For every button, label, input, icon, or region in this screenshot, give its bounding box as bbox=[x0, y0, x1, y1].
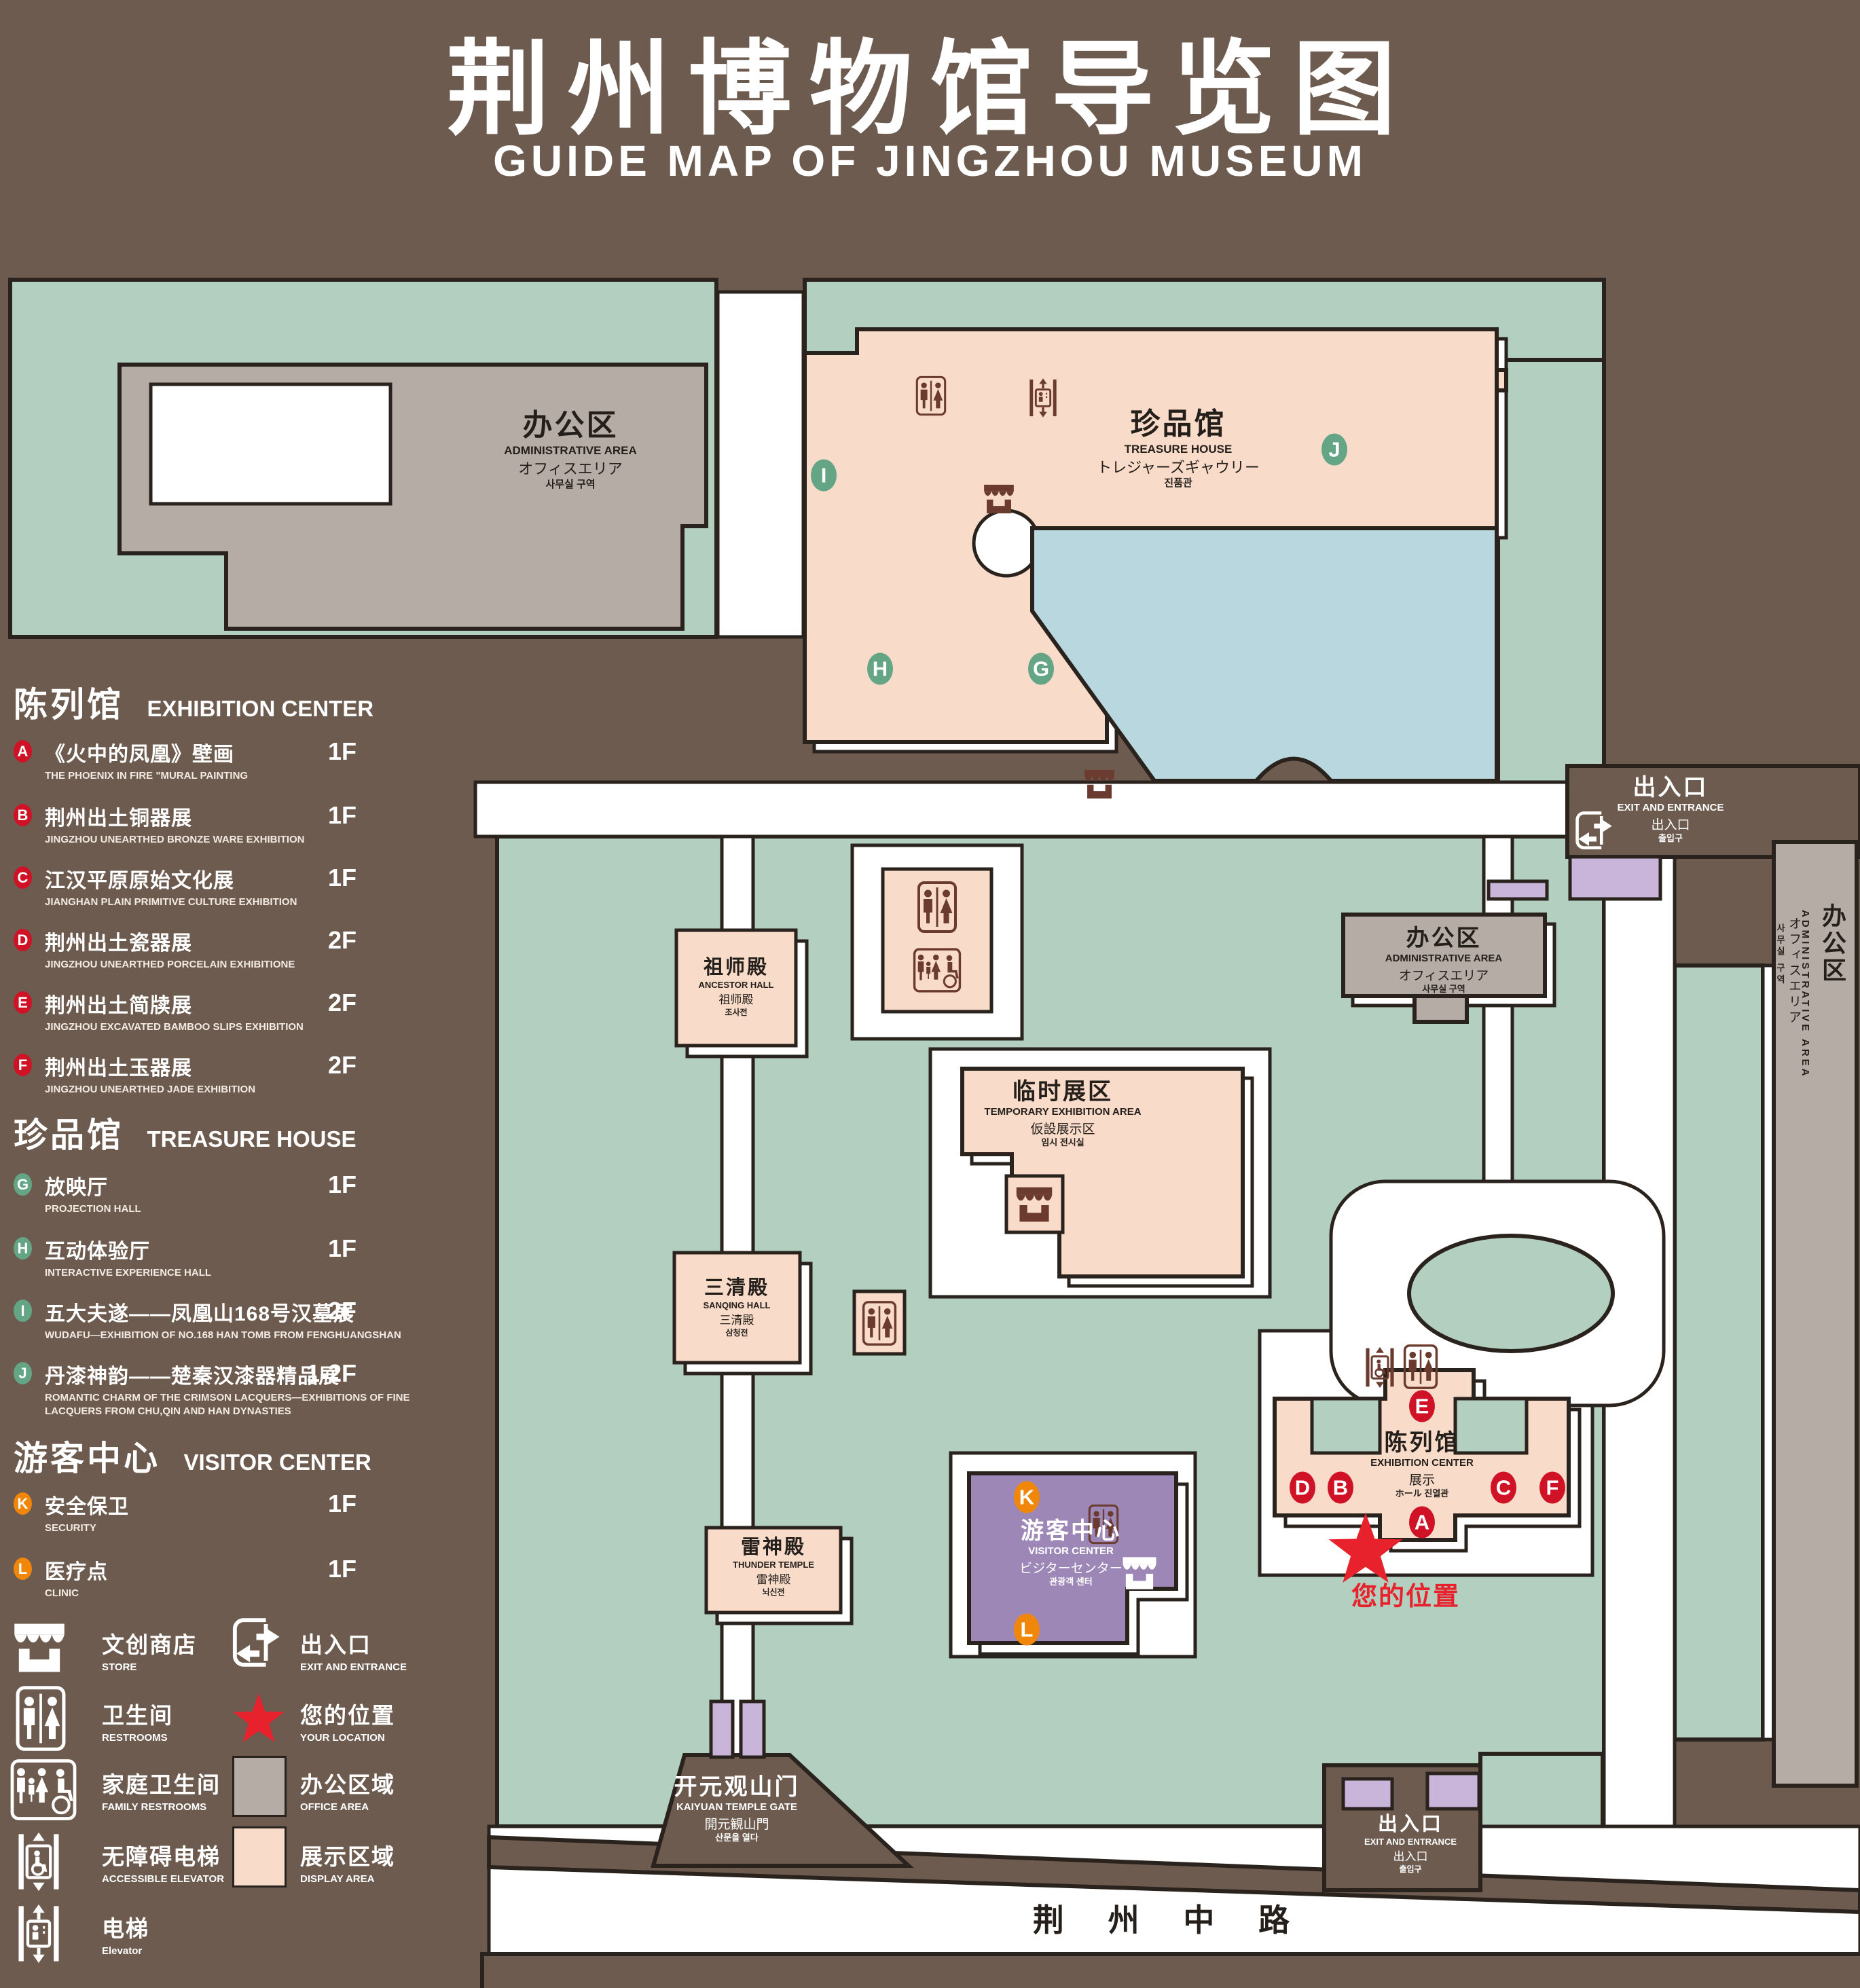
symbol-zh: 电梯 bbox=[102, 1911, 149, 1943]
legend-item-h: H 互动体验厅 INTERACTIVE EXPERIENCE HALL 1F bbox=[14, 1234, 462, 1280]
visitor-center-ja: ビジターセンター bbox=[976, 1561, 1166, 1577]
thunder-temple-ko: 뇌신전 bbox=[699, 1587, 848, 1598]
legend-caption: JINGZHOU UNEARTHED BRONZE WARE EXHIBITIO… bbox=[45, 833, 425, 847]
legend-caption: ROMANTIC CHARM OF THE CRIMSON LACQUERS—E… bbox=[45, 1391, 425, 1419]
exit-s-building-1 bbox=[1343, 1779, 1392, 1809]
gate-pillar-left bbox=[711, 1701, 733, 1757]
legend-caption: WUDAFU—EXHIBITION OF NO.168 HAN TOMB FRO… bbox=[45, 1329, 425, 1342]
admin-e-ko: 사무실 구역 bbox=[1342, 984, 1546, 995]
floor-label: 2F bbox=[299, 1051, 357, 1080]
map-marker-d: D bbox=[1290, 1472, 1315, 1504]
label-admin-nw: 办公区 ADMINISTRATIVE AREA オフィスエリア 사무실 구역 bbox=[435, 407, 706, 492]
legend-item-c: C 江汉平原原始文化展 JIANGHAN PLAIN PRIMITIVE CUL… bbox=[14, 864, 462, 909]
symbol-en: Elevator bbox=[102, 1945, 149, 1957]
treasure-house-en: TREASURE HOUSE bbox=[1056, 443, 1300, 457]
legend-item-f: F 荆州出土玉器展 JINGZHOU UNEARTHED JADE EXHIBI… bbox=[14, 1051, 462, 1097]
exit-s-building-2 bbox=[1427, 1773, 1479, 1809]
marker-badge-l: L bbox=[14, 1558, 32, 1580]
legend-caption: SECURITY bbox=[45, 1522, 425, 1535]
grounds-east-column bbox=[1675, 965, 1763, 1739]
road-mid-horizontal bbox=[475, 782, 1604, 836]
marker-badge-b: B bbox=[14, 804, 32, 826]
legend-header-zh: 游客中心 bbox=[14, 1439, 160, 1477]
legend-header-zh: 陈列馆 bbox=[14, 686, 124, 724]
legend-caption: JIANGHAN PLAIN PRIMITIVE CULTURE EXHIBIT… bbox=[45, 896, 425, 909]
symbol-zh: 办公区域 bbox=[300, 1767, 395, 1799]
legend-title: 丹漆神韵——楚秦汉漆器精品展 bbox=[45, 1359, 425, 1389]
sanqing-hall-ja: 三清殿 bbox=[669, 1314, 805, 1328]
floor-label: 2F bbox=[299, 926, 357, 955]
exit-ne-ja: 出入口 bbox=[1582, 817, 1759, 833]
legend-title: 荆州出土铜器展 bbox=[45, 801, 425, 831]
legend-title: 荆州出土简牍展 bbox=[45, 989, 425, 1018]
road-south-edge bbox=[482, 1954, 1860, 1988]
treasure-house-zh: 珍品馆 bbox=[1056, 406, 1300, 443]
floor-label: 1F bbox=[299, 1555, 357, 1583]
legend-item-g: G 放映厅 PROJECTION HALL 1F bbox=[14, 1171, 462, 1216]
symbol-zh: 卫生间 bbox=[102, 1697, 173, 1730]
floor-label: 1F bbox=[299, 801, 357, 830]
label-sanqing-hall: 三清殿 SANQING HALL 三清殿 삼청전 bbox=[669, 1276, 805, 1338]
family-restroom-icon bbox=[10, 1759, 77, 1821]
marker-badge-f: F bbox=[14, 1054, 32, 1076]
floor-label: 2F bbox=[299, 1297, 357, 1325]
map-marker-l: L bbox=[1014, 1614, 1040, 1646]
thunder-temple-ja: 雷神殿 bbox=[699, 1573, 848, 1587]
symbol-en: STORE bbox=[102, 1661, 197, 1673]
symbol-zh: 展示区域 bbox=[300, 1839, 395, 1871]
map-marker-a: A bbox=[1409, 1507, 1435, 1539]
floor-label: 1F bbox=[299, 864, 357, 892]
path-temple-mid2 bbox=[722, 1358, 753, 1534]
legend-item-k: K 安全保卫 SECURITY 1F bbox=[14, 1490, 462, 1535]
symbol-zh: 家庭卫生间 bbox=[102, 1767, 221, 1799]
legend-symbol-your-location: 您的位置 YOUR LOCATION bbox=[300, 1697, 395, 1744]
thunder-temple-en: THUNDER TEMPLE bbox=[699, 1560, 848, 1570]
marker-badge-j: J bbox=[14, 1362, 32, 1384]
floor-label: 1F bbox=[299, 1234, 357, 1263]
temporary-store-kiosk bbox=[1006, 1176, 1063, 1232]
ancestor-hall-zh: 祖师殿 bbox=[668, 956, 804, 980]
floor-label: 1-2F bbox=[299, 1359, 357, 1388]
admin-strip-zh: 办公区 bbox=[1815, 903, 1850, 984]
legend-symbol-exit: 出入口 EXIT AND ENTRANCE bbox=[300, 1627, 407, 1673]
temporary-exhibition-zh: 临时展区 bbox=[961, 1078, 1165, 1106]
exit-ne-ko: 출입구 bbox=[1582, 833, 1759, 844]
path-temple-mid1 bbox=[722, 1039, 753, 1263]
elevator-icon bbox=[15, 1901, 62, 1966]
road-nw-vertical bbox=[718, 292, 803, 637]
guide-map-poster: 荆州博物馆导览图 GUIDE MAP OF JINGZHOU MUSEUM 陈列… bbox=[0, 0, 1860, 1988]
symbol-en: YOUR LOCATION bbox=[300, 1732, 395, 1744]
floor-label: 1F bbox=[299, 1490, 357, 1518]
legend-header-en: VISITOR CENTER bbox=[183, 1450, 371, 1475]
legend-title: 放映厅 bbox=[45, 1171, 425, 1200]
map-marker-f: F bbox=[1539, 1472, 1565, 1504]
legend-title: 荆州出土瓷器展 bbox=[45, 926, 425, 956]
legend-item-d: D 荆州出土瓷器展 JINGZHOU UNEARTHED PORCELAIN E… bbox=[14, 926, 462, 972]
marker-badge-k: K bbox=[14, 1492, 32, 1515]
legend-title: 安全保卫 bbox=[45, 1490, 425, 1520]
visitor-center-en: VISITOR CENTER bbox=[976, 1545, 1166, 1558]
marker-badge-g: G bbox=[14, 1173, 32, 1196]
legend-caption: PROJECTION HALL bbox=[45, 1202, 425, 1216]
marker-badge-e: E bbox=[14, 991, 32, 1014]
exhibition-center-en: EXHIBITION CENTER bbox=[1320, 1457, 1524, 1469]
marker-badge-a: A bbox=[14, 740, 32, 762]
admin-nw-ja: オフィスエリア bbox=[435, 460, 706, 479]
legend-item-l: L 医疗点 CLINIC 1F bbox=[14, 1555, 462, 1600]
temporary-exhibition-ja: 仮設展示区 bbox=[961, 1122, 1165, 1137]
map-marker-i: I bbox=[811, 460, 837, 492]
ancestor-hall-ko: 조사전 bbox=[668, 1008, 804, 1018]
sanqing-hall-ko: 삼청전 bbox=[669, 1328, 805, 1338]
office-area-swatch bbox=[232, 1756, 287, 1817]
legend-symbol-store: 文创商店 STORE bbox=[102, 1627, 197, 1673]
sanqing-hall-en: SANQING HALL bbox=[669, 1300, 805, 1311]
legend-title: 《火中的凤凰》壁画 bbox=[45, 737, 425, 767]
ancestor-hall-ja: 祖师殿 bbox=[668, 993, 804, 1008]
legend-header-en: EXHIBITION CENTER bbox=[147, 696, 373, 721]
label-ancestor-hall: 祖师殿 ANCESTOR HALL 祖师殿 조사전 bbox=[668, 956, 804, 1018]
map-marker-k: K bbox=[1014, 1481, 1040, 1513]
exit-ne-building bbox=[1570, 857, 1660, 899]
legend-item-a: A 《火中的凤凰》壁画 THE PHOENIX IN FIRE "MURAL P… bbox=[14, 737, 462, 783]
symbol-en: ACCESSIBLE ELEVATOR bbox=[102, 1873, 224, 1885]
map-marker-g: G bbox=[1028, 653, 1054, 685]
ancestor-hall-en: ANCESTOR HALL bbox=[668, 980, 804, 991]
marker-badge-i: I bbox=[14, 1300, 32, 1322]
gate-ko: 산문을 열다 bbox=[635, 1833, 839, 1843]
exit-s-zh: 出入口 bbox=[1332, 1813, 1489, 1837]
label-temporary-exhibition: 临时展区 TEMPORARY EXHIBITION AREA 仮設展示区 임시 … bbox=[961, 1078, 1165, 1148]
exit-s-ko: 출입구 bbox=[1332, 1864, 1489, 1875]
symbol-en: EXIT AND ENTRANCE bbox=[300, 1661, 407, 1673]
display-area-swatch bbox=[232, 1826, 287, 1888]
map-marker-e: E bbox=[1409, 1391, 1435, 1422]
gate-en: KAIYUAN TEMPLE GATE bbox=[635, 1801, 839, 1814]
exit-icon bbox=[231, 1616, 287, 1669]
legend-title: 荆州出土玉器展 bbox=[45, 1051, 425, 1081]
admin-strip-ja: オフィスエリア bbox=[1785, 917, 1803, 1026]
garden-island bbox=[1409, 1236, 1613, 1351]
restroom-icon bbox=[15, 1685, 67, 1752]
label-treasure-house: 珍品馆 TREASURE HOUSE トレジャーズギャウリー 진품관 bbox=[1056, 406, 1300, 490]
path-temple-north bbox=[722, 836, 753, 938]
symbol-zh: 无障碍电梯 bbox=[102, 1839, 224, 1871]
legend-item-e: E 荆州出土简牍展 JINGZHOU EXCAVATED BAMBOO SLIP… bbox=[14, 989, 462, 1034]
sanqing-hall-zh: 三清殿 bbox=[669, 1276, 805, 1300]
legend-caption: CLINIC bbox=[45, 1587, 425, 1600]
legend-title: 医疗点 bbox=[45, 1555, 425, 1585]
legend-title: 江汉平原原始文化展 bbox=[45, 864, 425, 894]
gate-zh: 开元观山门 bbox=[635, 1773, 839, 1801]
admin-nw-courtyard bbox=[151, 384, 390, 504]
your-location-star-icon bbox=[232, 1693, 285, 1744]
treasure-pond-path bbox=[974, 511, 1039, 576]
admin-e-zh: 办公区 bbox=[1342, 925, 1546, 953]
legend-header-zh: 珍品馆 bbox=[14, 1116, 124, 1154]
legend-caption: JINGZHOU EXCAVATED BAMBOO SLIPS EXHIBITI… bbox=[45, 1020, 425, 1034]
admin-e-en: ADMINISTRATIVE AREA bbox=[1342, 953, 1546, 965]
symbol-en: DISPLAY AREA bbox=[300, 1873, 395, 1885]
symbol-en: FAMILY RESTROOMS bbox=[102, 1801, 221, 1813]
legend-caption: THE PHOENIX IN FIRE "MURAL PAINTING bbox=[45, 769, 425, 783]
your-location-label: 您的位置 bbox=[1324, 1575, 1487, 1613]
legend-item-j: J 丹漆神韵——楚秦汉漆器精品展 ROMANTIC CHARM OF THE C… bbox=[14, 1359, 462, 1419]
legend-symbol-accessible-elevator: 无障碍电梯 ACCESSIBLE ELEVATOR bbox=[102, 1839, 224, 1885]
legend-symbol-office-area: 办公区域 OFFICE AREA bbox=[300, 1767, 395, 1813]
legend-header-treasure-house: 珍品馆 TREASURE HOUSE bbox=[14, 1108, 357, 1157]
legend-header-exhibition-center: 陈列馆 EXHIBITION CENTER bbox=[14, 678, 373, 726]
page-subtitle: GUIDE MAP OF JINGZHOU MUSEUM bbox=[0, 136, 1860, 186]
visitor-center-ko: 관광객 센터 bbox=[976, 1577, 1166, 1587]
map-marker-c: C bbox=[1491, 1472, 1516, 1504]
exit-ne-zh: 出入口 bbox=[1582, 774, 1759, 802]
legend-header-en: TREASURE HOUSE bbox=[147, 1126, 356, 1152]
legend-caption: JINGZHOU UNEARTHED JADE EXHIBITION bbox=[45, 1083, 425, 1097]
legend-symbol-restrooms: 卫生间 RESTROOMS bbox=[102, 1697, 173, 1744]
treasure-house-ja: トレジャーズギャウリー bbox=[1056, 459, 1300, 477]
label-visitor-center: 游客中心 VISITOR CENTER ビジターセンター 관광객 센터 bbox=[976, 1517, 1166, 1587]
legend-title: 五大夫遂——凤凰山168号汉墓展 bbox=[45, 1297, 425, 1327]
admin-strip-ko: 사무실 구역 bbox=[1774, 923, 1787, 987]
legend-symbol-display-area: 展示区域 DISPLAY AREA bbox=[300, 1839, 395, 1885]
treasure-house-ko: 진품관 bbox=[1056, 477, 1300, 490]
map-marker-j: J bbox=[1321, 434, 1347, 466]
thunder-temple-zh: 雷神殿 bbox=[699, 1536, 848, 1560]
exit-ne-en: EXIT AND ENTRANCE bbox=[1582, 802, 1759, 814]
label-thunder-temple: 雷神殿 THUNDER TEMPLE 雷神殿 뇌신전 bbox=[699, 1536, 848, 1598]
accessible-elevator-icon bbox=[15, 1829, 62, 1894]
marker-badge-d: D bbox=[14, 929, 32, 951]
label-exit-ne: 出入口 EXIT AND ENTRANCE 出入口 출입구 bbox=[1582, 774, 1759, 844]
page-title: 荆州博物馆导览图 bbox=[0, 5, 1860, 155]
symbol-en: RESTROOMS bbox=[102, 1732, 173, 1744]
label-exit-s: 出入口 EXIT AND ENTRANCE 出入口 출입구 bbox=[1332, 1813, 1489, 1875]
store-icon bbox=[11, 1620, 68, 1676]
gate-pillar-right bbox=[741, 1701, 764, 1757]
symbol-zh: 出入口 bbox=[300, 1627, 407, 1659]
visitor-center-zh: 游客中心 bbox=[976, 1517, 1166, 1545]
admin-e-ja: オフィスエリア bbox=[1342, 968, 1546, 984]
legend-item-b: B 荆州出土铜器展 JINGZHOU UNEARTHED BRONZE WARE… bbox=[14, 801, 462, 847]
floor-label: 2F bbox=[299, 989, 357, 1017]
symbol-zh: 您的位置 bbox=[300, 1697, 395, 1730]
legend-title: 互动体验厅 bbox=[45, 1234, 425, 1264]
legend-symbol-elevator: 电梯 Elevator bbox=[102, 1911, 149, 1957]
exit-s-en: EXIT AND ENTRANCE bbox=[1332, 1837, 1489, 1847]
legend-item-i: I 五大夫遂——凤凰山168号汉墓展 WUDAFU—EXHIBITION OF … bbox=[14, 1297, 462, 1342]
marker-badge-c: C bbox=[14, 866, 32, 889]
symbol-zh: 文创商店 bbox=[102, 1627, 197, 1659]
admin-nw-ko: 사무실 구역 bbox=[435, 479, 706, 491]
exhibition-center-zh: 陈列馆 bbox=[1320, 1429, 1524, 1457]
legend-symbol-family-restrooms: 家庭卫生间 FAMILY RESTROOMS bbox=[102, 1767, 221, 1813]
marker-badge-h: H bbox=[14, 1237, 32, 1259]
road-label: 荆 州 中 路 bbox=[960, 1896, 1381, 1940]
map-marker-b: B bbox=[1328, 1472, 1353, 1504]
admin-nw-en: ADMINISTRATIVE AREA bbox=[435, 444, 706, 458]
symbol-en: OFFICE AREA bbox=[300, 1801, 395, 1813]
floor-label: 1F bbox=[299, 737, 357, 766]
floor-label: 1F bbox=[299, 1171, 357, 1199]
legend-caption: INTERACTIVE EXPERIENCE HALL bbox=[45, 1266, 425, 1280]
exit-s-ja: 出入口 bbox=[1332, 1850, 1489, 1864]
legend-caption: JINGZHOU UNEARTHED PORCELAIN EXHIBITIONE bbox=[45, 958, 425, 972]
temporary-exhibition-en: TEMPORARY EXHIBITION AREA bbox=[961, 1106, 1165, 1118]
gate-ja: 開元観山門 bbox=[635, 1817, 839, 1833]
admin-nw-zh: 办公区 bbox=[435, 407, 706, 444]
label-kaiyuan-gate: 开元观山门 KAIYUAN TEMPLE GATE 開元観山門 산문을 열다 bbox=[635, 1773, 839, 1843]
temporary-exhibition-ko: 임시 전시실 bbox=[961, 1137, 1165, 1148]
grounds-northeast bbox=[1498, 360, 1604, 815]
map-marker-h: H bbox=[867, 653, 893, 685]
legend-header-visitor-center: 游客中心 VISITOR CENTER bbox=[14, 1431, 371, 1480]
label-admin-e: 办公区 ADMINISTRATIVE AREA オフィスエリア 사무실 구역 bbox=[1342, 925, 1546, 995]
